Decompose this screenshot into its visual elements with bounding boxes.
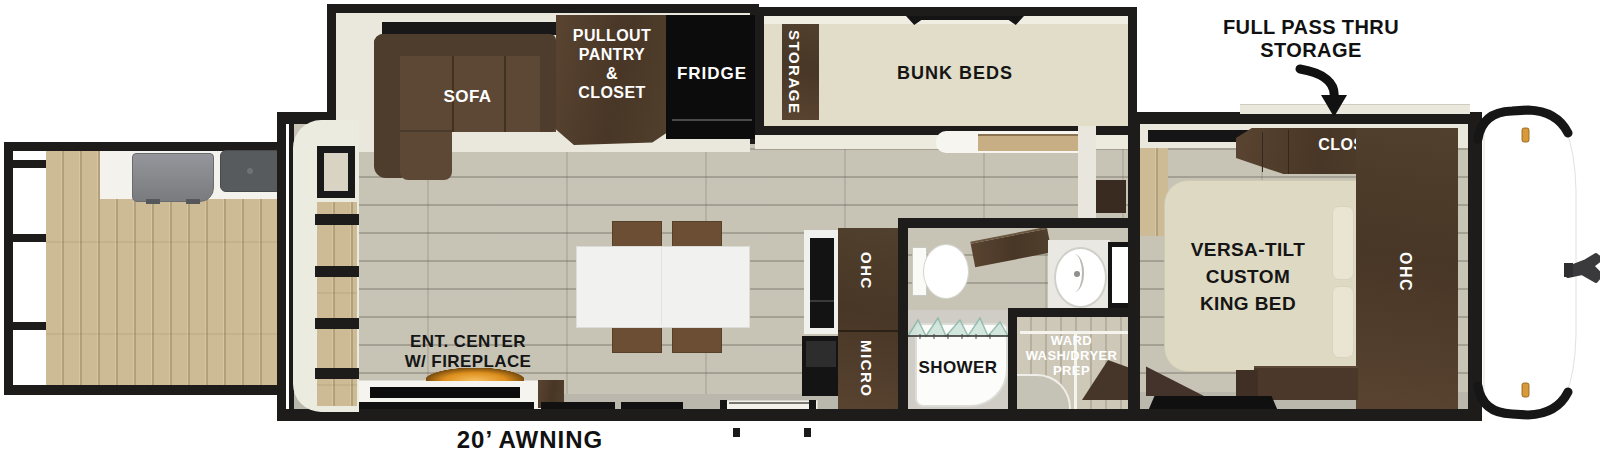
ramp-door-bar [315, 318, 359, 329]
bunk-slideout-wall-left [755, 7, 764, 135]
wall-ward-top [1008, 308, 1140, 317]
sofa-chaise [400, 130, 452, 180]
dinette-chair [672, 221, 722, 249]
range-inner [806, 341, 836, 367]
bed-pillow [1332, 206, 1354, 280]
front-cap [1468, 95, 1600, 430]
bedroom-ohc-label: OHC [1396, 252, 1414, 292]
front-top-band [1240, 104, 1470, 114]
deck-rail-bottom [4, 385, 288, 395]
pantry-label: PULLOUT PANTRY & CLOSET [558, 26, 666, 102]
bunk-beds-label: BUNK BEDS [860, 63, 1050, 84]
closet-seam [1262, 132, 1263, 172]
pass-thru-label: FULL PASS THRU STORAGE [1205, 16, 1417, 62]
rear-deck [4, 142, 288, 395]
closet-seam [1288, 130, 1289, 174]
wall-bathroom-top [898, 218, 1140, 228]
deck-rail-left [4, 142, 13, 395]
ramp-door-bar [315, 368, 359, 379]
awning-bracket [804, 428, 811, 437]
pass-thru-arrow [1292, 64, 1348, 118]
grill-foot [186, 199, 200, 204]
wall-left-outer [277, 112, 286, 421]
sofa-slideout-wall-top [327, 4, 759, 13]
bed-pillow [1332, 286, 1354, 358]
kitchen-ohc-label: OHC [858, 252, 875, 290]
ramp-door-bar [315, 214, 359, 225]
under-bunk-wall-strip [1078, 126, 1096, 218]
sink-drain-dot [1074, 271, 1080, 277]
deck-rail-rung [13, 160, 47, 168]
sofa-label: SOFA [420, 87, 515, 107]
fridge-label: FRIDGE [666, 64, 758, 84]
awning-bracket [733, 428, 740, 437]
ward-label: WARD WASH/DRYER PREP [1012, 333, 1131, 378]
sofa-arm-left [374, 34, 402, 178]
bunk-slideout-wall-top [755, 7, 1137, 16]
storage-label: STORAGE [786, 30, 803, 114]
deck-rail-rung [13, 322, 47, 330]
bed-foot-step [1236, 370, 1258, 396]
wall-tv [1096, 180, 1126, 213]
oven-divider [810, 300, 834, 302]
tv [370, 387, 520, 398]
ramp-door-window [324, 153, 348, 191]
shower-curtain-glass [908, 314, 1010, 340]
ramp-door-bar [315, 266, 359, 277]
shower-label: SHOWER [908, 358, 1008, 378]
marker-light [1522, 128, 1529, 142]
king-bed-label: VERSA-TILT CUSTOM KING BED [1168, 236, 1328, 317]
wall-bedroom-divider [1128, 124, 1140, 421]
awning-label: 20’ AWNING [420, 426, 640, 452]
kitchen-island [576, 246, 750, 328]
floorplan-diagram: SOFA PULLOUT PANTRY & CLOSET FRIDGE STOR… [0, 0, 1600, 452]
bathroom-window [1112, 247, 1128, 303]
bed-foot-bench [1254, 366, 1358, 400]
outdoor-grill [132, 153, 214, 202]
wall-ward-left [1008, 317, 1017, 421]
wall-bottom [277, 409, 1482, 421]
sink-drain [247, 168, 253, 174]
under-bunk-counter-wood [978, 134, 1088, 151]
dinette-chair [672, 325, 722, 353]
deck-rail-rung [13, 234, 47, 242]
ent-center-label: ENT. CENTER W/ FIREPLACE [386, 332, 550, 372]
grill-foot [146, 199, 160, 204]
dinette-chair [612, 221, 662, 249]
entry-door-line [729, 402, 809, 404]
marker-light [1522, 383, 1529, 397]
cabinet-seam [838, 330, 898, 332]
sofa-arm-right [540, 34, 556, 132]
micro-label: MICRO [858, 340, 875, 398]
wall-bathroom-left [898, 228, 908, 421]
dinette-chair [612, 325, 662, 353]
oven [810, 238, 834, 328]
island-seam [661, 247, 662, 325]
fridge-handle-line [672, 119, 752, 121]
toilet-bowl [923, 244, 969, 299]
